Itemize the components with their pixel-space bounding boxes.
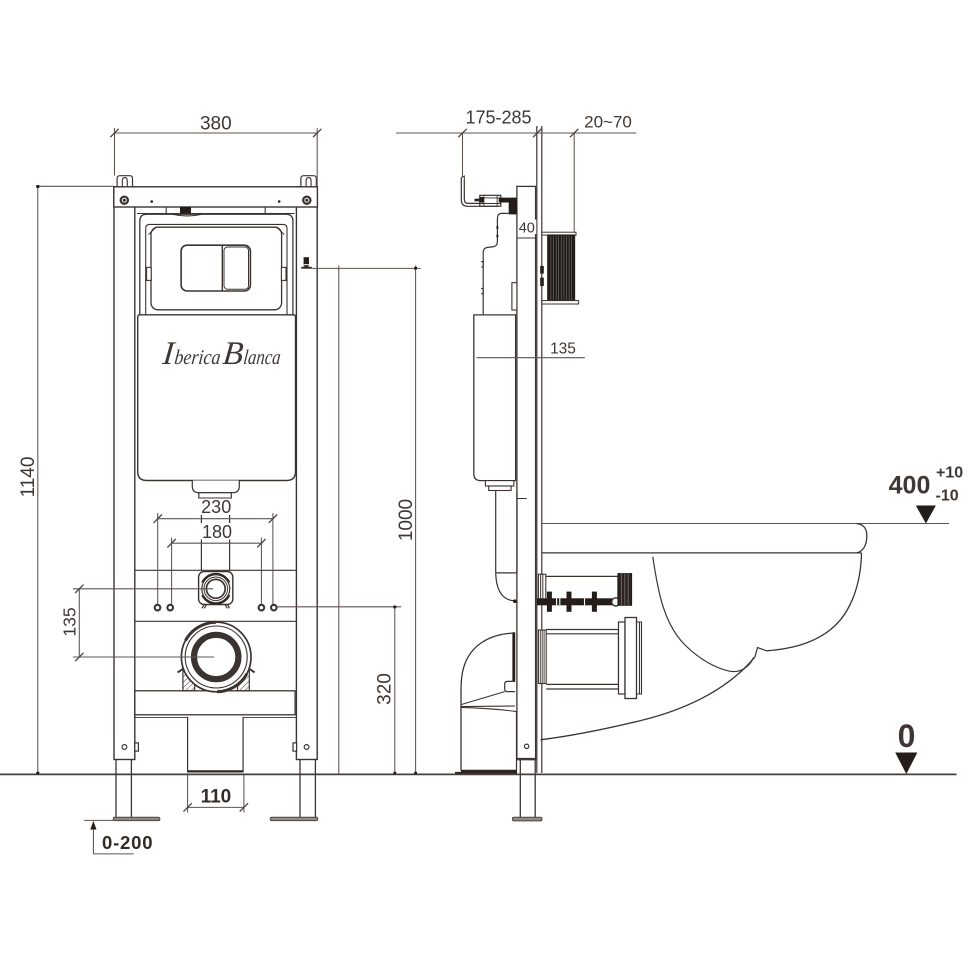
svg-text:1000: 1000 [396, 499, 417, 541]
svg-text:175-285: 175-285 [465, 108, 531, 128]
svg-text:1140: 1140 [18, 457, 39, 498]
svg-text:B: B [221, 336, 245, 372]
svg-text:+10: +10 [936, 464, 963, 481]
svg-text:40: 40 [519, 221, 535, 237]
svg-text:135: 135 [550, 341, 576, 358]
svg-text:0-200: 0-200 [102, 832, 153, 853]
svg-text:380: 380 [200, 114, 232, 135]
svg-text:berica: berica [173, 345, 222, 369]
svg-text:110: 110 [201, 787, 232, 808]
svg-text:180: 180 [202, 522, 232, 542]
svg-text:20~70: 20~70 [584, 113, 632, 132]
svg-text:0: 0 [898, 718, 916, 754]
svg-text:230: 230 [201, 497, 231, 517]
svg-text:135: 135 [60, 607, 80, 636]
svg-text:lanca: lanca [242, 345, 282, 369]
svg-text:400: 400 [889, 471, 931, 499]
svg-text:320: 320 [375, 673, 396, 705]
svg-text:-10: -10 [936, 488, 959, 505]
